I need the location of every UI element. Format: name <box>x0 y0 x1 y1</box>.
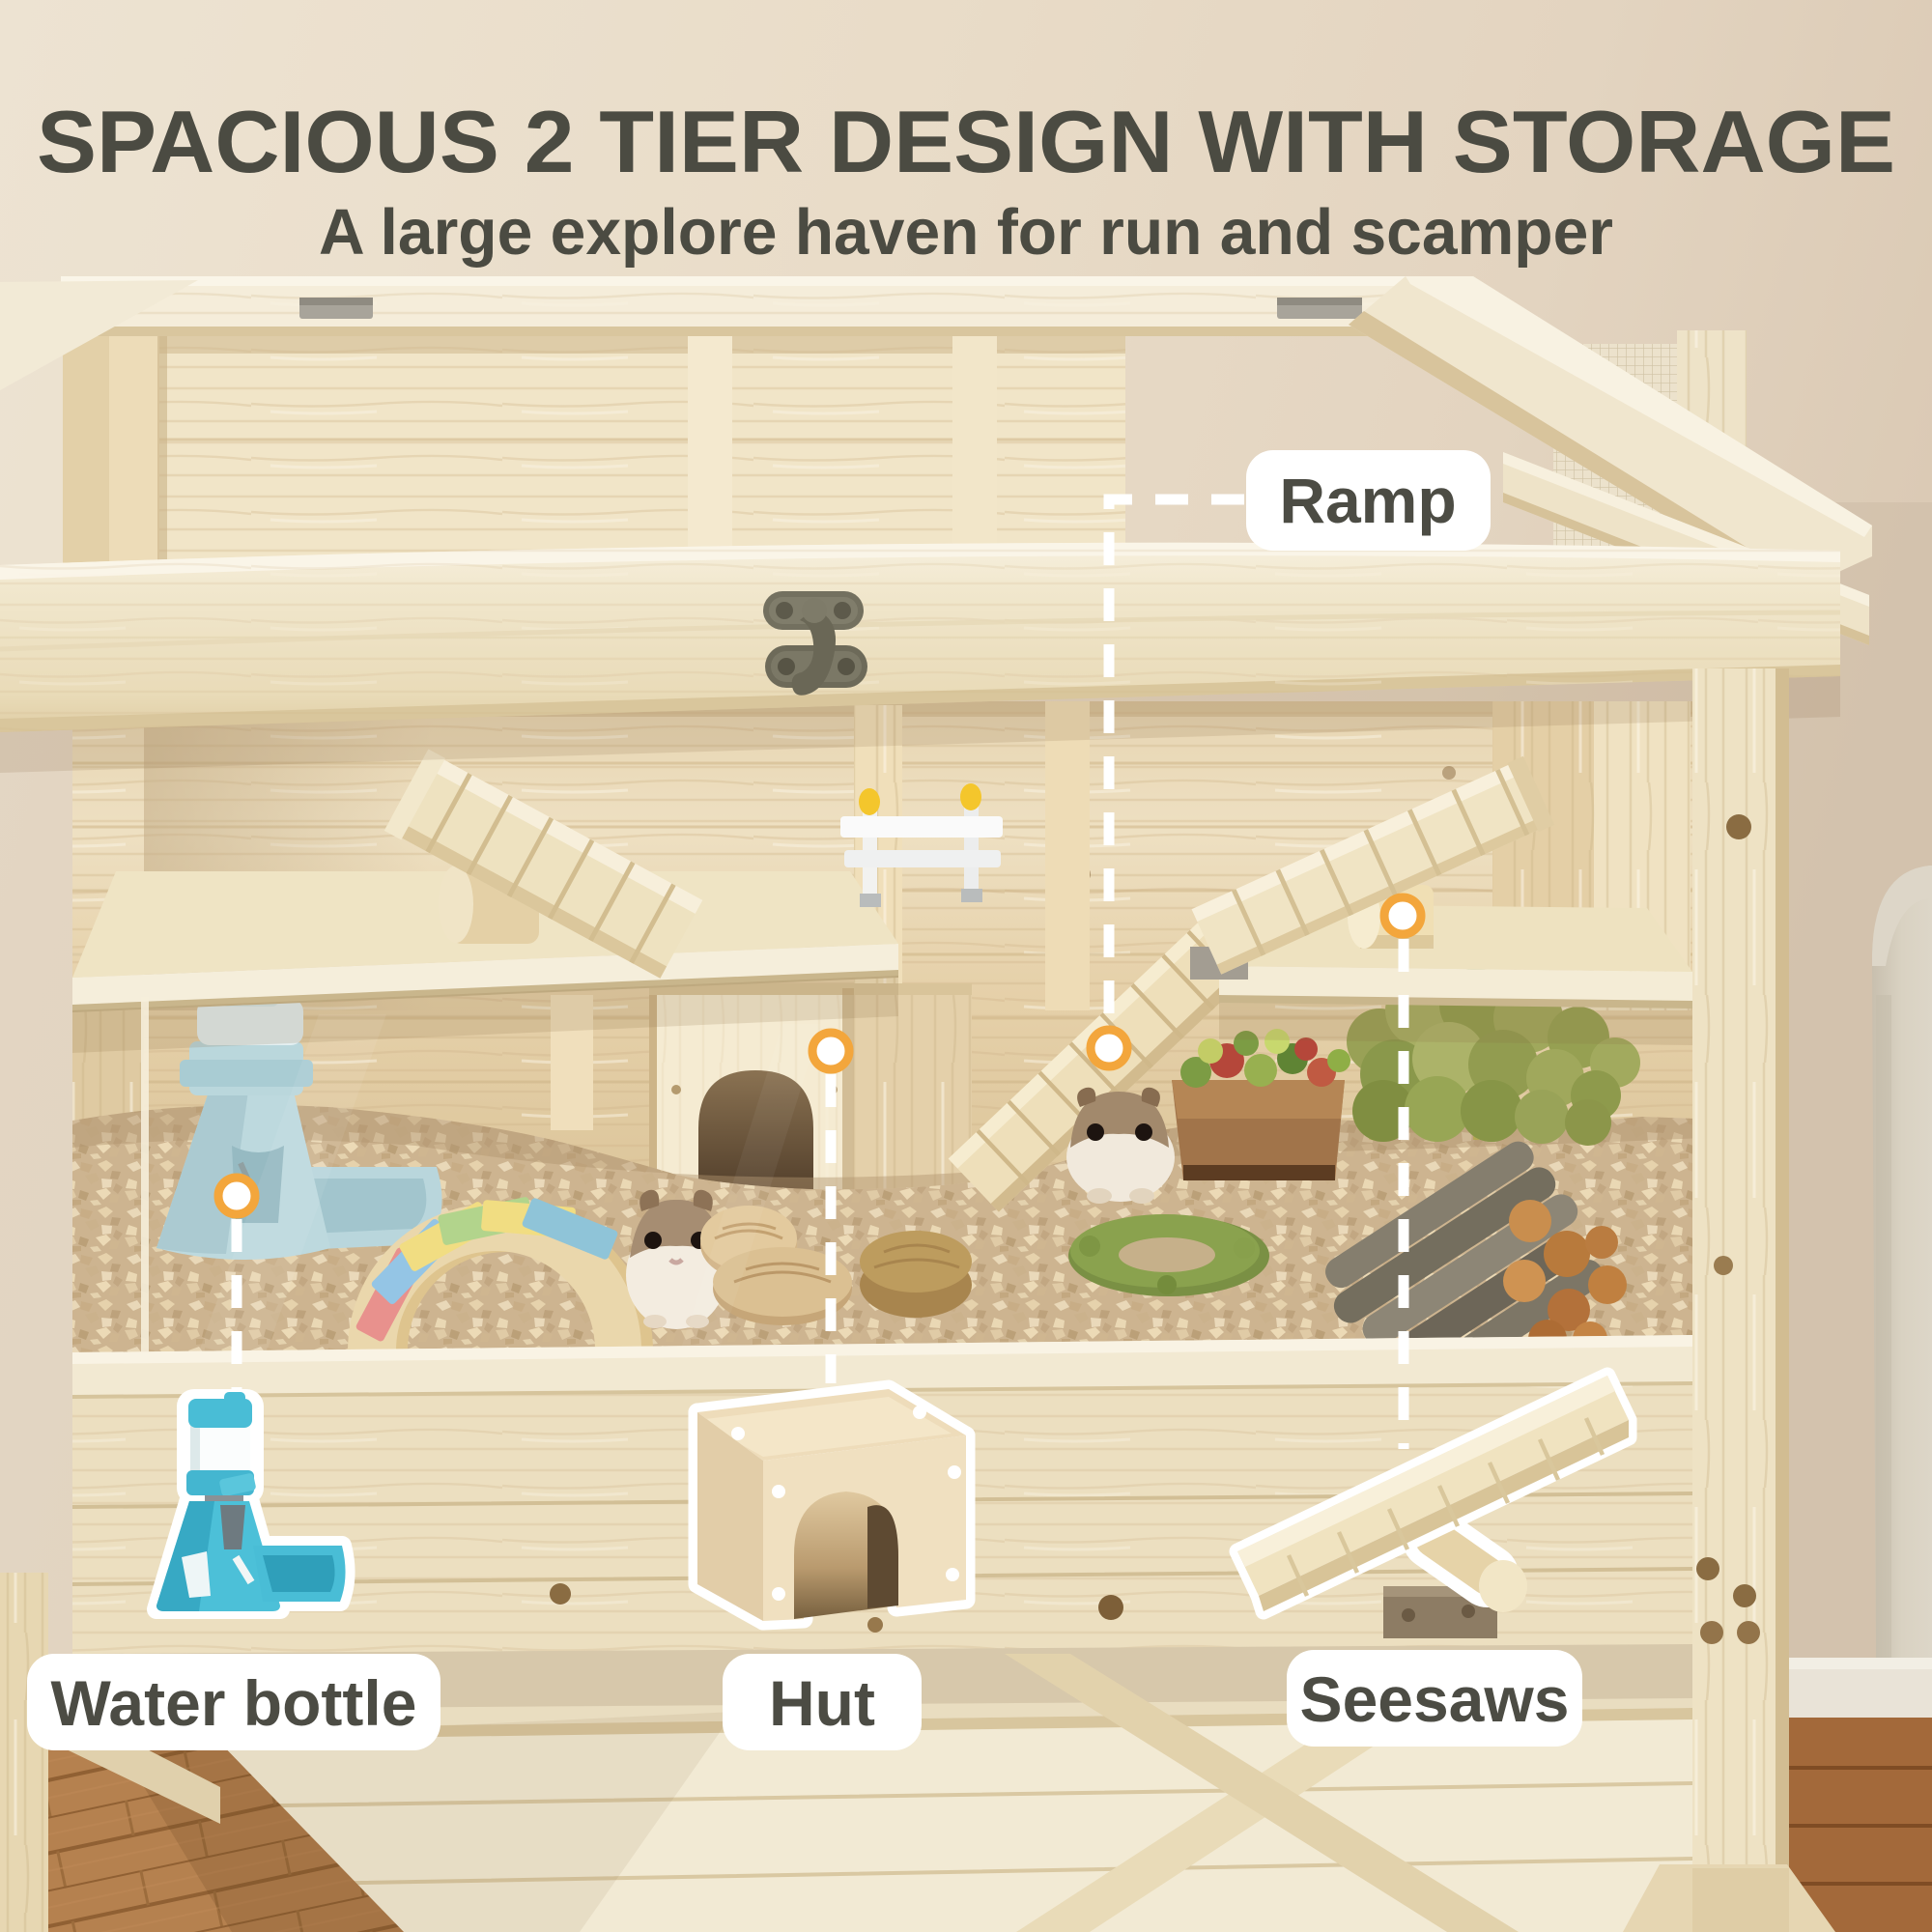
svg-text:Seesaws: Seesaws <box>1300 1663 1570 1735</box>
svg-text:Water bottle: Water bottle <box>51 1667 417 1739</box>
svg-text:Ramp: Ramp <box>1279 465 1456 536</box>
svg-text:A large explore haven for run: A large explore haven for run and scampe… <box>319 196 1613 269</box>
svg-text:SPACIOUS 2 TIER DESIGN WITH ST: SPACIOUS 2 TIER DESIGN WITH STORAGE <box>37 94 1895 191</box>
svg-text:Hut: Hut <box>769 1667 875 1739</box>
